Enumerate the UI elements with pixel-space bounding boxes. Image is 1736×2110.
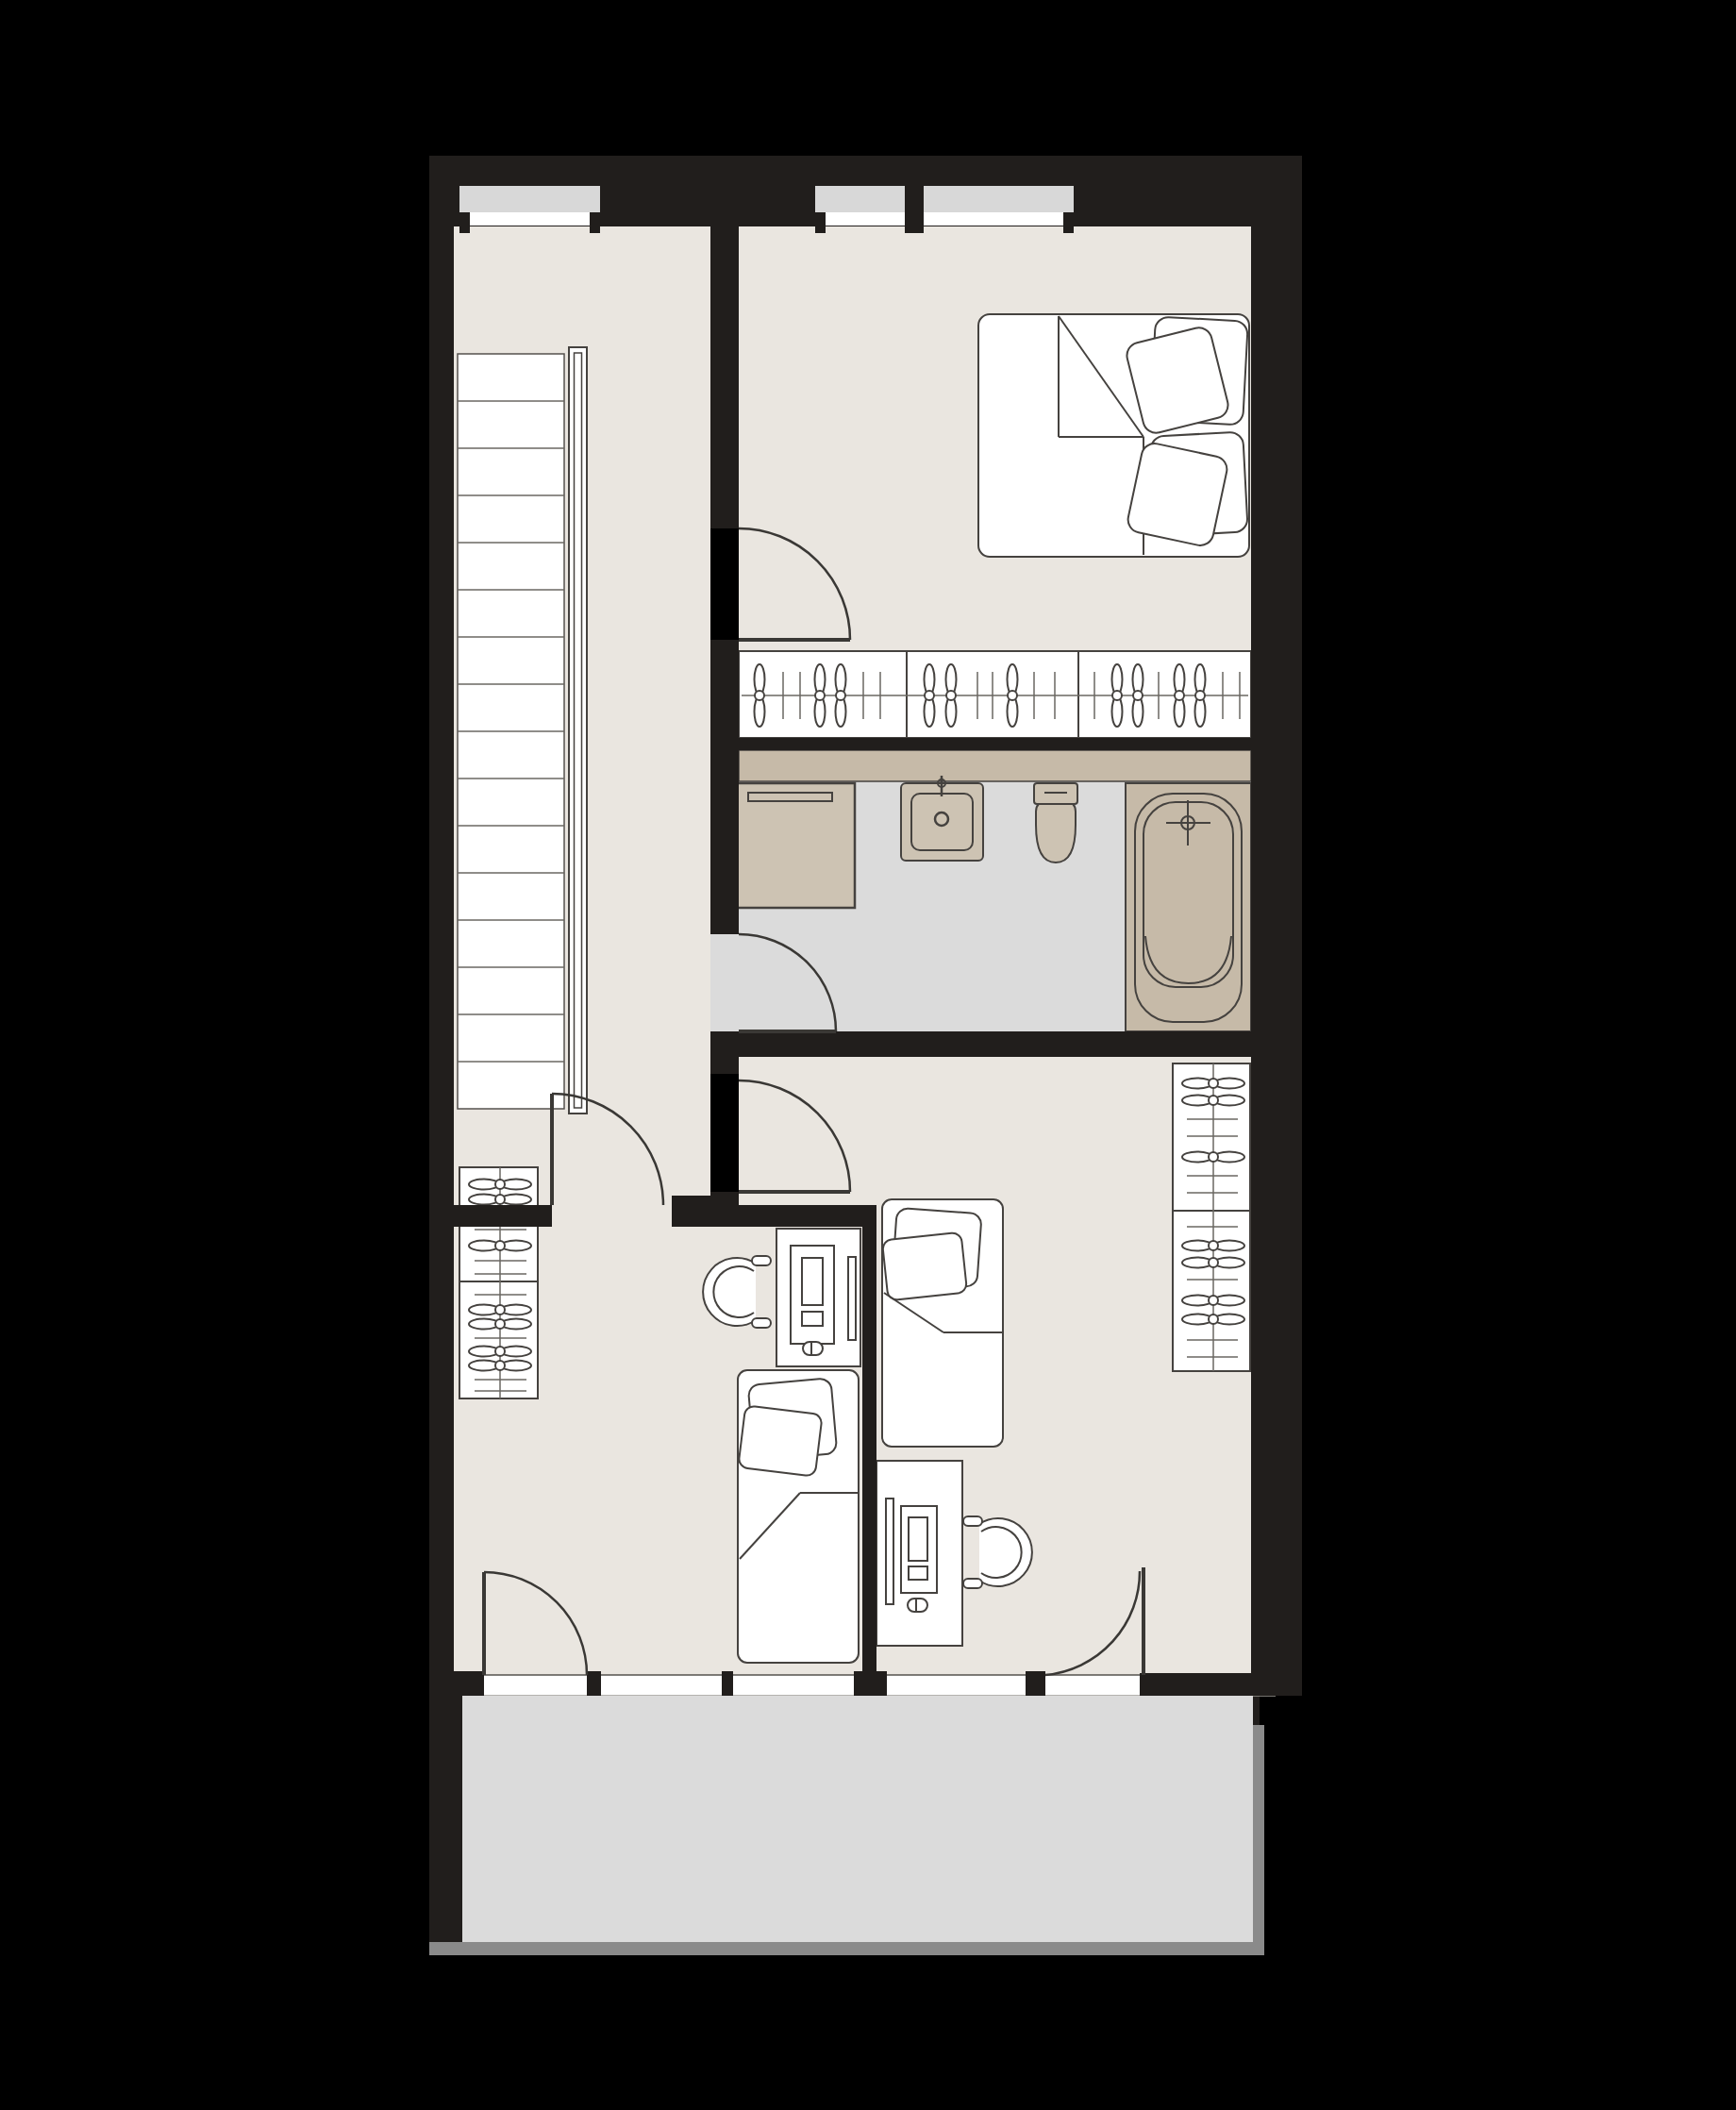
monitor: [848, 1257, 856, 1340]
single-bed-left: [738, 1370, 859, 1663]
monitor: [886, 1499, 893, 1604]
handrail: [569, 347, 587, 1114]
double-bed: [978, 314, 1249, 557]
balcony-left-wall: [429, 1677, 462, 1942]
single-bed-right: [882, 1199, 1003, 1447]
balcony: [429, 1677, 1264, 1955]
bathroom-counter: [739, 750, 1251, 781]
wardrobe-right: [1173, 1063, 1250, 1371]
wardrobe-left: [459, 1167, 538, 1398]
mouse: [803, 1342, 823, 1355]
left-wall: [429, 156, 454, 1677]
window-mullion: [905, 186, 924, 233]
floor-plan: [0, 0, 1736, 2110]
bottom-solid-wall: [1140, 1673, 1276, 1696]
washing-machine: [737, 783, 855, 908]
bath-bottom-wall: [710, 1031, 1276, 1057]
computer-tower: [901, 1506, 937, 1593]
bathtub: [1126, 783, 1251, 1031]
pillow: [882, 1232, 967, 1300]
computer-tower: [791, 1246, 834, 1344]
toilet: [1034, 783, 1077, 862]
wash-basin: [901, 776, 983, 861]
desk-left: [776, 1229, 860, 1366]
mouse: [908, 1599, 927, 1612]
closet-bath-wall: [710, 738, 1251, 750]
desk-right: [876, 1461, 962, 1646]
balcony-railing-bottom: [429, 1942, 1264, 1955]
pillow: [738, 1405, 822, 1477]
wardrobe-closet: [739, 651, 1251, 738]
right-wall: [1251, 156, 1302, 1696]
balcony-railing-right: [1253, 1725, 1264, 1955]
kids-rooms-divider-wall: [862, 1205, 876, 1675]
bottom-band: [454, 1671, 1276, 1698]
balcony-floor: [462, 1696, 1253, 1942]
